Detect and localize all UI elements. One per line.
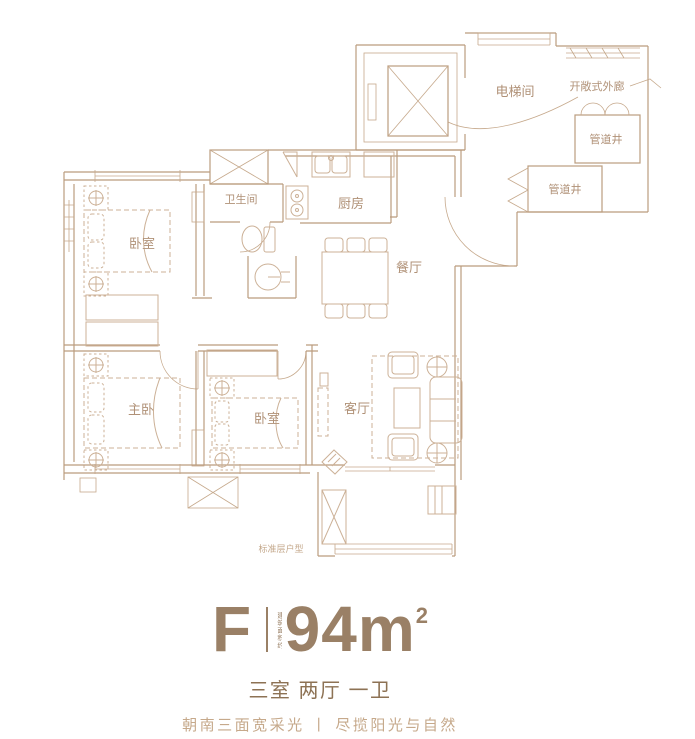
wardrobe-icon	[86, 295, 158, 346]
floor-plan-drawing: 电梯间 开敞式外廊 管道井 管道井 卫生间 厨房 餐厅 卧室 主卧 卧室 客厅 …	[0, 0, 695, 590]
area-value: 94m	[285, 597, 416, 661]
plan-note: 标准层户型	[258, 543, 303, 554]
toilet-icon	[242, 226, 275, 252]
sofa-icon	[372, 352, 462, 463]
stove-icon	[286, 186, 308, 219]
elevator-car-icon	[368, 66, 448, 136]
layout-summary: 三室 两厅 一卫	[0, 674, 640, 703]
room-label-kitchen: 厨房	[338, 196, 364, 211]
tagline: 朝南三面宽采光 丨 尽揽阳光与自然	[0, 714, 640, 735]
headline: F 建筑面积约 94m 2	[0, 597, 640, 661]
area-note-vertical: 建筑面积约	[275, 612, 282, 650]
room-label-elevator: 电梯间	[495, 84, 534, 99]
area-exponent: 2	[416, 605, 428, 627]
room-label-bedroom1: 卧室	[129, 236, 155, 251]
room-label-bedroom2: 卧室	[254, 411, 280, 426]
bed-icon	[84, 186, 170, 296]
dining-table-icon	[322, 238, 388, 318]
wardrobe-icon	[207, 350, 277, 376]
water-heater-icon	[322, 490, 346, 544]
room-label-shaft2: 管道井	[549, 182, 582, 196]
unit-summary: F 建筑面积约 94m 2 三室 两厅 一卫 朝南三面宽采光 丨 尽揽阳光与自然	[0, 597, 640, 735]
kitchen-sink-icon	[312, 152, 350, 177]
room-label-dining: 餐厅	[396, 260, 422, 275]
room-label-bathroom: 卫生间	[225, 192, 258, 206]
unit-letter: F	[212, 597, 251, 661]
tv-cabinet-icon	[318, 373, 328, 436]
floorplan-marketing-card: 电梯间 开敞式外廊 管道井 管道井 卫生间 厨房 餐厅 卧室 主卧 卧室 客厅 …	[0, 0, 695, 739]
washing-machine-icon	[428, 486, 456, 514]
room-label-master: 主卧	[128, 402, 154, 417]
room-label-shaft1: 管道井	[590, 132, 623, 146]
headline-divider	[266, 607, 268, 652]
area-number: 94	[285, 593, 358, 665]
furniture	[84, 66, 462, 544]
room-label-living: 客厅	[344, 401, 370, 416]
wash-basin-icon	[255, 264, 290, 290]
shoe-cabinet-icon	[322, 450, 347, 474]
area-unit: m	[358, 593, 416, 665]
room-label-corridor: 开敞式外廊	[570, 79, 625, 93]
